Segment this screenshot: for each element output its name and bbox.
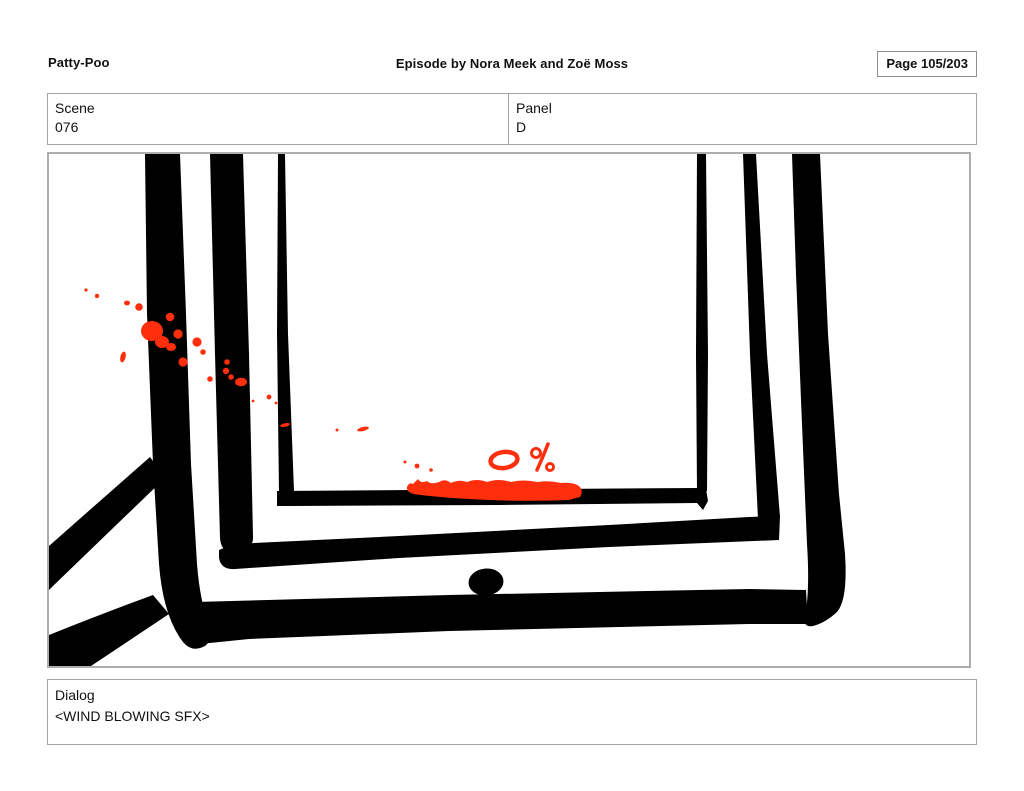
outer-frame-bottom — [194, 589, 808, 644]
page-number-box: Page 105/203 — [877, 51, 977, 77]
artwork-canvas: 0% — [49, 154, 969, 666]
episode-credit: Episode by Nora Meek and Zoë Moss — [396, 56, 628, 71]
blood-splatter — [84, 288, 432, 471]
dialog-label: Dialog — [55, 685, 969, 706]
scene-panel-table: Scene 076 Panel D — [47, 93, 977, 145]
storyboard-page: Patty-Poo Episode by Nora Meek and Zoë M… — [0, 0, 1024, 791]
percent-top-circle — [532, 449, 541, 458]
battery-zero-glyph — [490, 450, 519, 470]
storyboard-artwork-frame: 0% — [47, 152, 971, 668]
dialog-box: Dialog <WIND BLOWING SFX> — [47, 679, 977, 745]
scene-cell: Scene 076 — [48, 94, 508, 144]
middle-frame-right — [743, 154, 780, 519]
home-button-dot — [467, 567, 505, 598]
percent-bottom-circle — [547, 464, 554, 471]
tablet-frames — [145, 154, 846, 649]
panel-value: D — [516, 118, 969, 137]
middle-frame-left — [210, 154, 253, 551]
scene-value: 076 — [55, 118, 501, 137]
dialog-value: <WIND BLOWING SFX> — [55, 706, 969, 727]
inner-frame-left — [277, 154, 294, 493]
diagonal-strokes — [49, 457, 169, 666]
diagonal-stroke-lower — [49, 595, 169, 666]
panel-label: Panel — [516, 99, 969, 118]
outer-frame-left — [145, 154, 211, 649]
episode-credit-wrap: Episode by Nora Meek and Zoë Moss — [0, 55, 1024, 73]
inner-frame-right — [696, 154, 708, 492]
scene-label: Scene — [55, 99, 501, 118]
outer-frame-right — [792, 154, 846, 626]
diagonal-stroke-upper — [49, 457, 165, 590]
panel-cell: Panel D — [508, 94, 976, 144]
middle-frame-bottom — [219, 516, 780, 569]
battery-percent: 0% — [490, 444, 554, 471]
